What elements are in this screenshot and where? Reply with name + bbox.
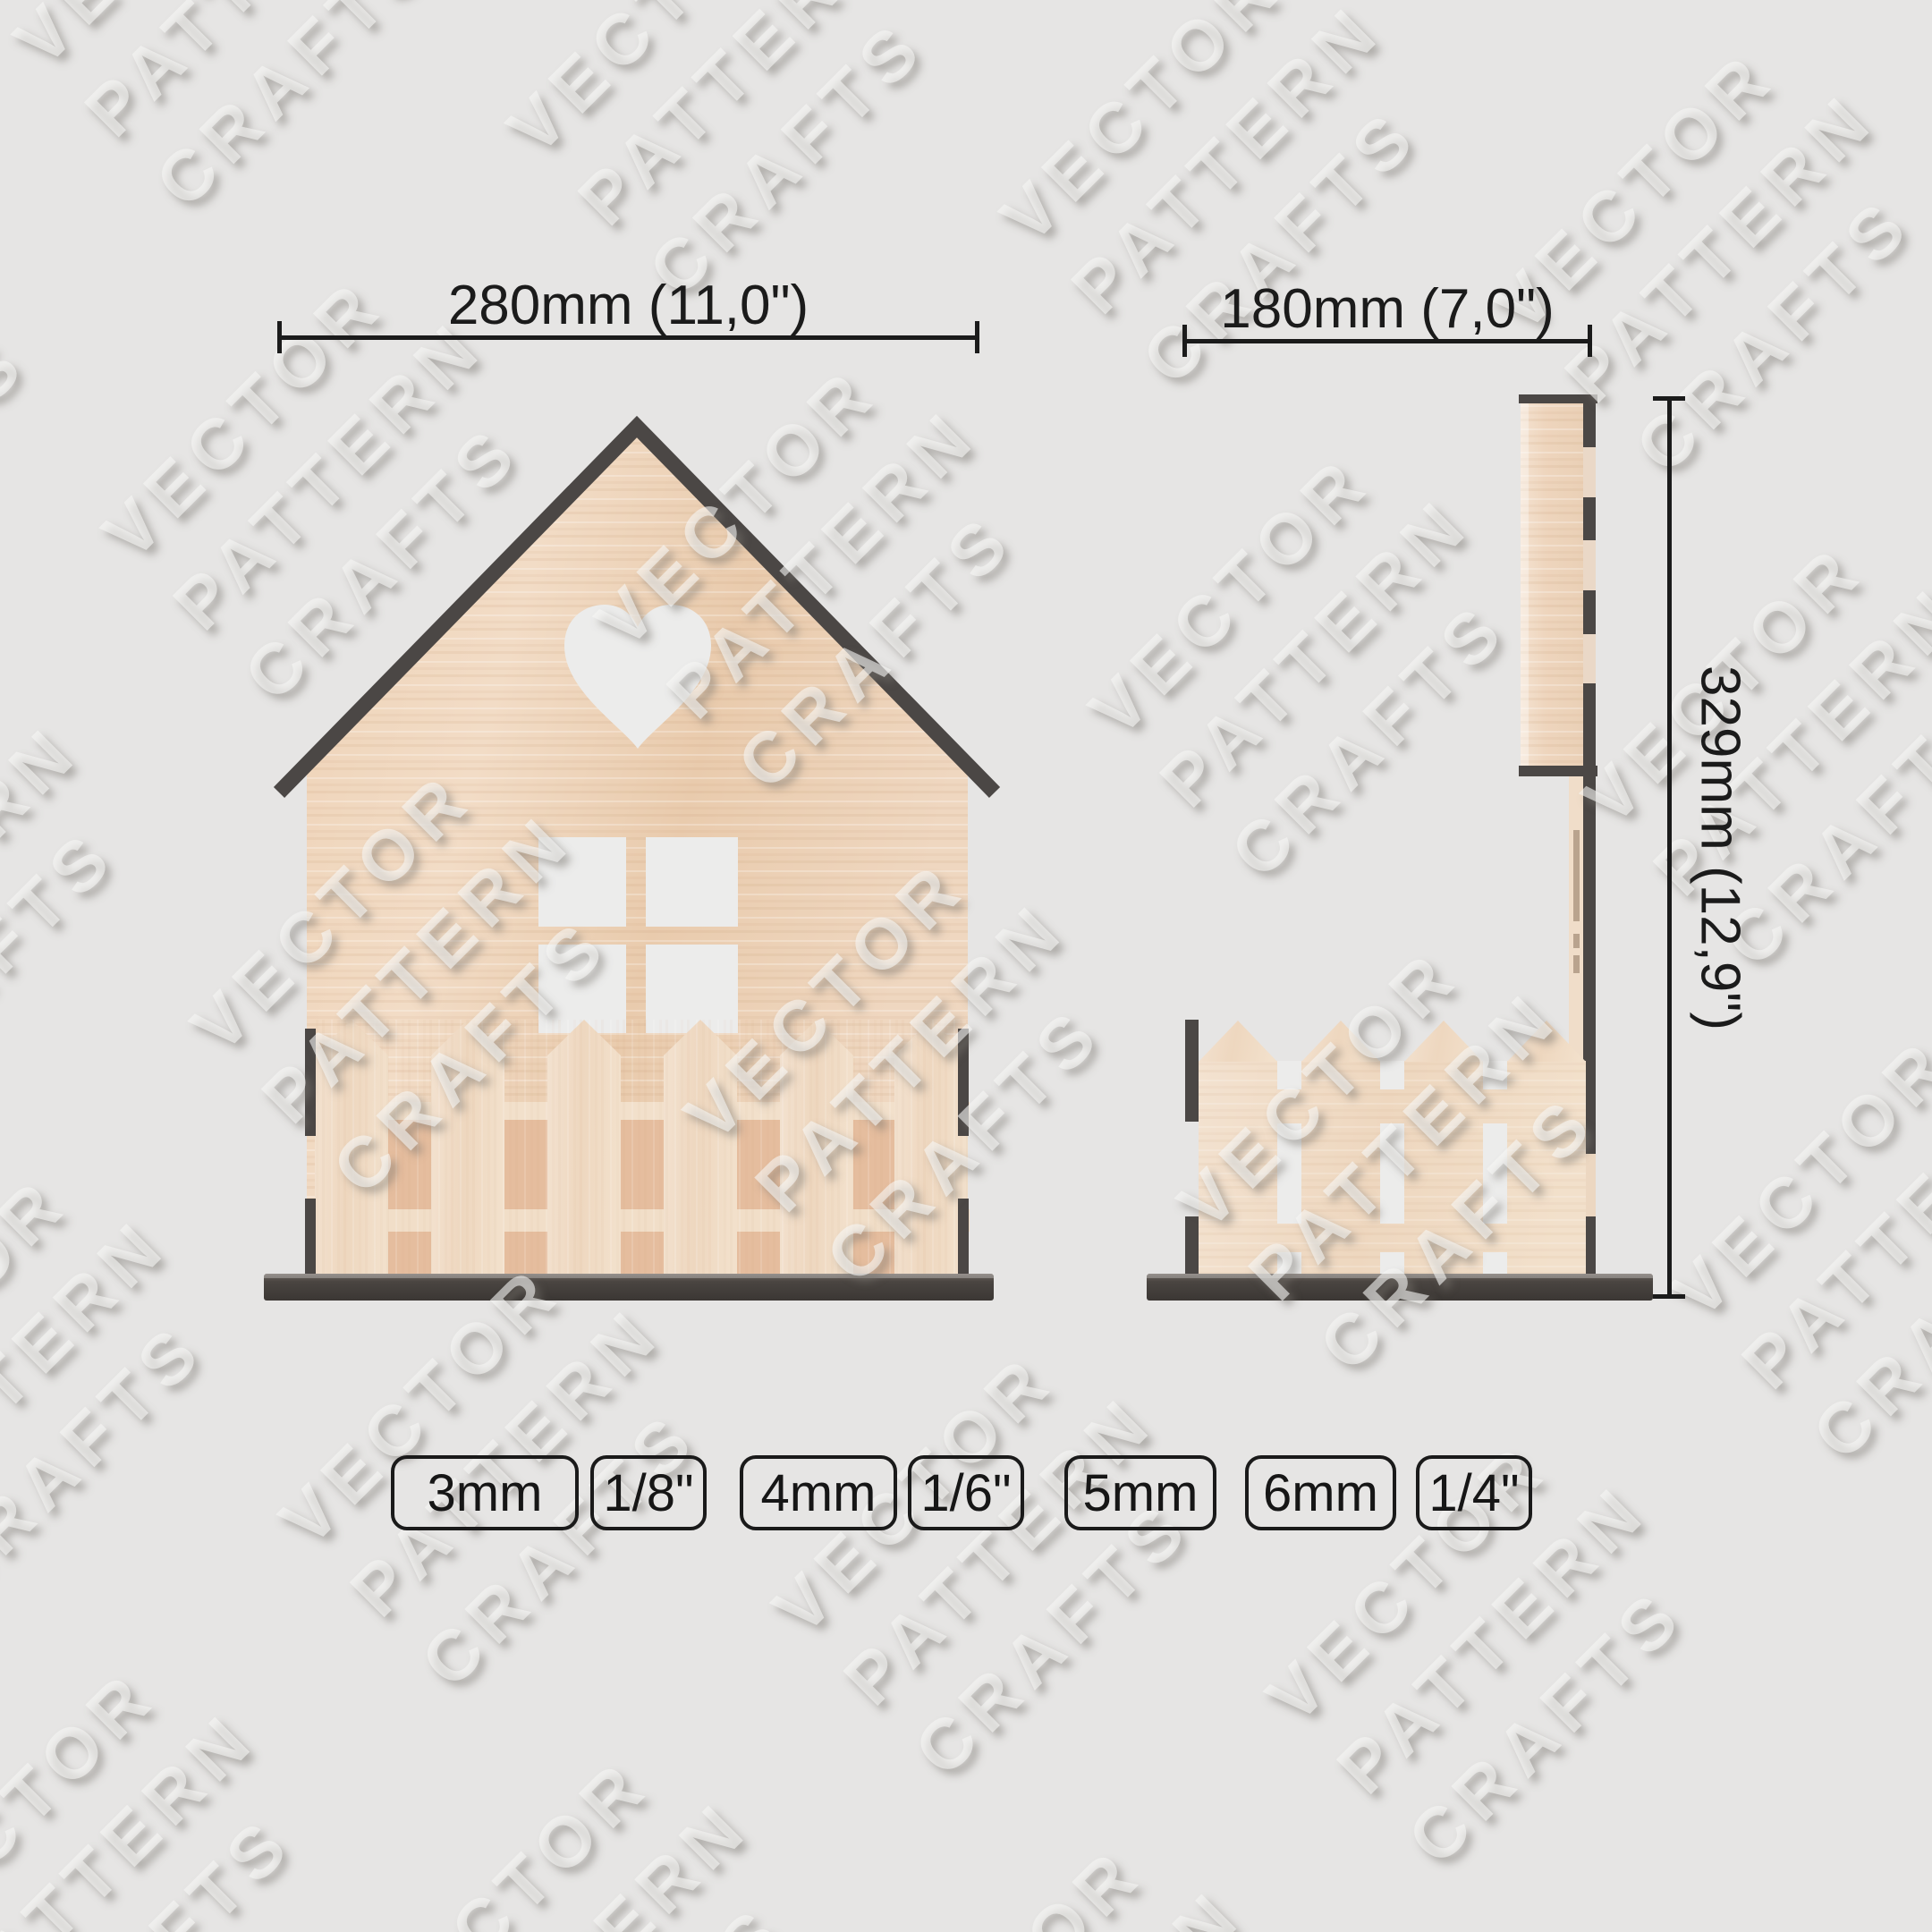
side-fence-peaks [1199,1021,1586,1062]
thickness-option-6mm[interactable]: 6mm [1245,1455,1396,1530]
window-pane [646,837,738,927]
picket-grain [315,1020,968,1274]
fence-picket [1301,1021,1380,1062]
window-pane [538,837,626,927]
front-fence [315,1020,968,1274]
product-diagram-canvas: VECTORPATTERNCRAFTSVECTORPATTERNCRAFTSVE… [0,0,1932,1932]
base-plate-highlight [1147,1274,1653,1278]
plank-grain [1521,401,1583,769]
fence-edge-notch [1185,1020,1199,1122]
fence-picket [1404,1021,1483,1062]
thickness-option-5mm[interactable]: 5mm [1064,1455,1216,1530]
thickness-option-1-4in[interactable]: 1/4" [1416,1455,1532,1530]
front-view-drawing [264,427,995,1301]
plank-edge-highlight [1521,401,1529,769]
laser-cut-house-planter-drawing [0,0,1932,1932]
thickness-option-4mm[interactable]: 4mm [740,1455,897,1530]
fence-edge-notch [1185,1216,1199,1274]
side-view-drawing [1147,394,1653,1301]
thickness-option-3mm[interactable]: 3mm [391,1455,579,1530]
fence-picket [1199,1021,1277,1062]
thickness-option-1-8in[interactable]: 1/8" [590,1455,707,1530]
thickness-option-1-6in[interactable]: 1/6" [908,1455,1024,1530]
base-plate-highlight [264,1274,994,1278]
side-fence [1185,1020,1586,1274]
